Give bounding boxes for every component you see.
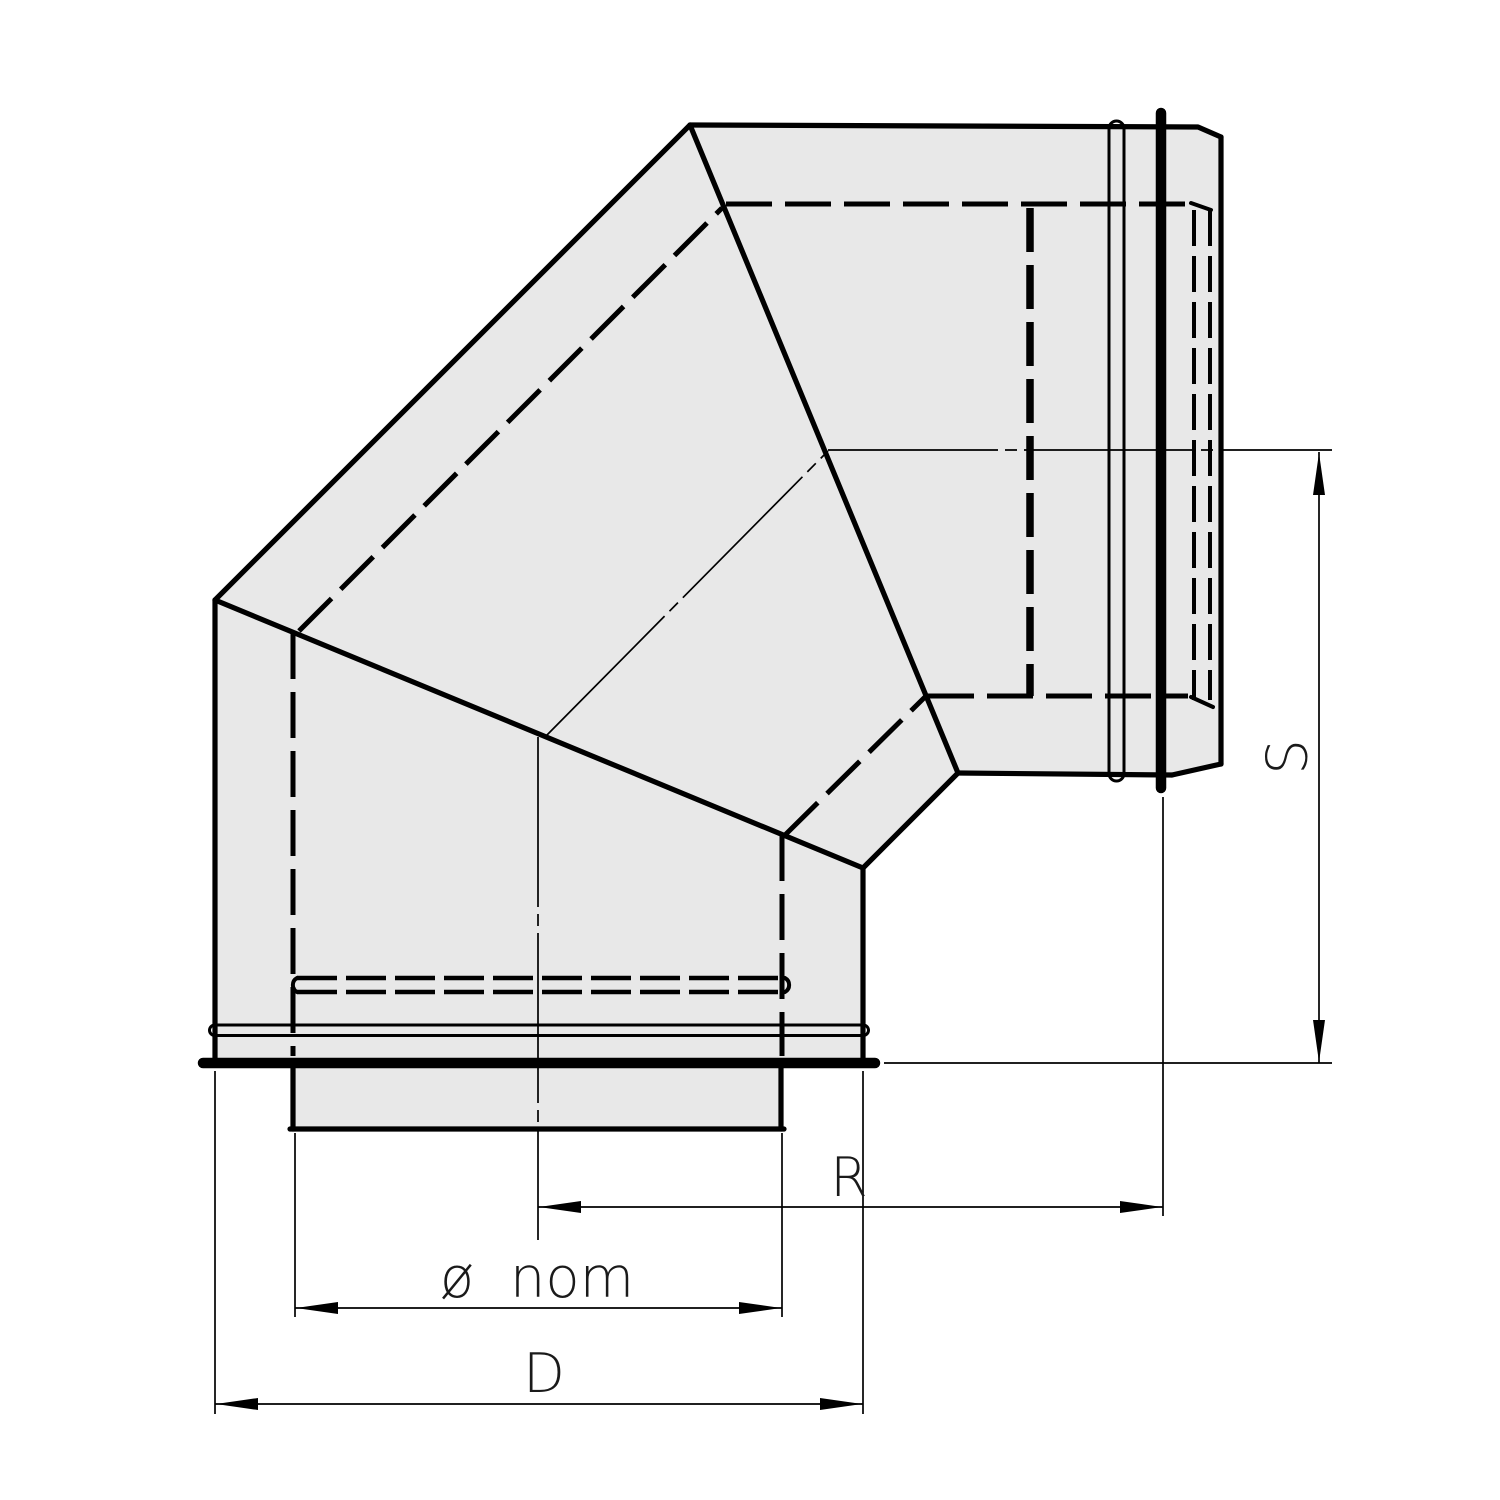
spigot-pipe-fill — [293, 1068, 781, 1129]
elbow-technical-drawing: R ø nom D S — [0, 0, 1500, 1500]
arrowhead-r-right — [1120, 1201, 1162, 1213]
arrowhead-s-top — [1313, 453, 1325, 495]
arrowhead-d-right — [820, 1398, 862, 1410]
arrowhead-d-left — [216, 1398, 258, 1410]
arrowhead-diameter-left — [296, 1302, 338, 1314]
horizontal-pipe-bottom-edge — [958, 773, 1172, 775]
dim-label-s: S — [1256, 739, 1321, 775]
arrowhead-diameter-right — [739, 1302, 781, 1314]
arrowhead-r-left — [539, 1201, 581, 1213]
drawing-canvas: R ø nom D S — [0, 0, 1500, 1500]
elbow-body-silhouette — [215, 125, 1221, 1058]
dim-label-diameter-nominal: ø nom — [440, 1246, 634, 1311]
dim-label-d: D — [523, 1342, 565, 1405]
dim-label-r: R — [830, 1146, 868, 1209]
arrowhead-s-bottom — [1313, 1020, 1325, 1062]
